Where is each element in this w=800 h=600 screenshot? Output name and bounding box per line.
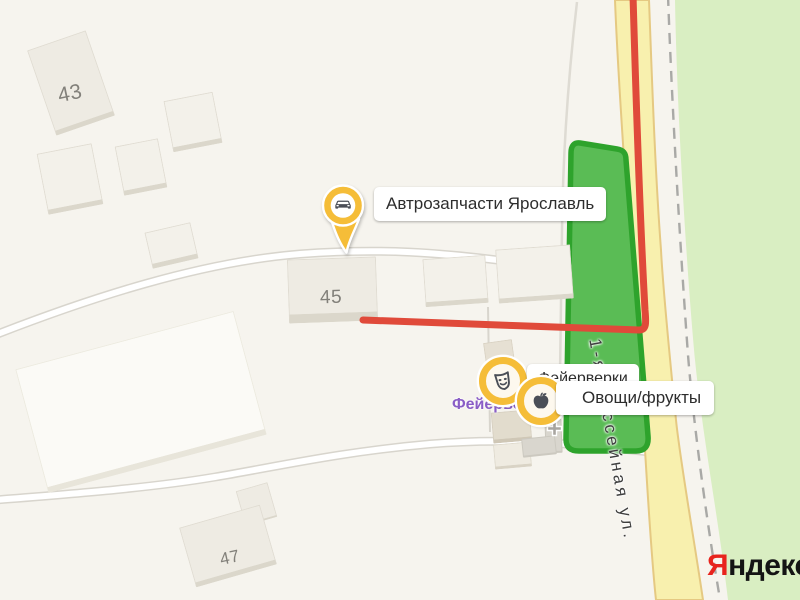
poi-label-autoparts[interactable]: Автрозапчасти Ярославль	[374, 187, 606, 221]
yandex-logo[interactable]: Яндекс	[707, 549, 800, 583]
car-icon	[335, 201, 350, 209]
poi-label-vegetables[interactable]: Овощи/фрукты	[556, 381, 714, 415]
yandex-logo-ya: Я	[707, 549, 728, 582]
apple-icon	[529, 389, 553, 413]
yandex-logo-rest: ндекс	[728, 549, 800, 582]
poi-marker-autoparts[interactable]	[315, 179, 371, 259]
map-canvas[interactable]: 43 45 47 1-я Шоссейная ул. Фейерверки Фе…	[0, 0, 800, 600]
traffic-layer	[0, 0, 800, 600]
theater-mask-icon	[491, 369, 515, 393]
traffic-red-line	[363, 0, 646, 330]
